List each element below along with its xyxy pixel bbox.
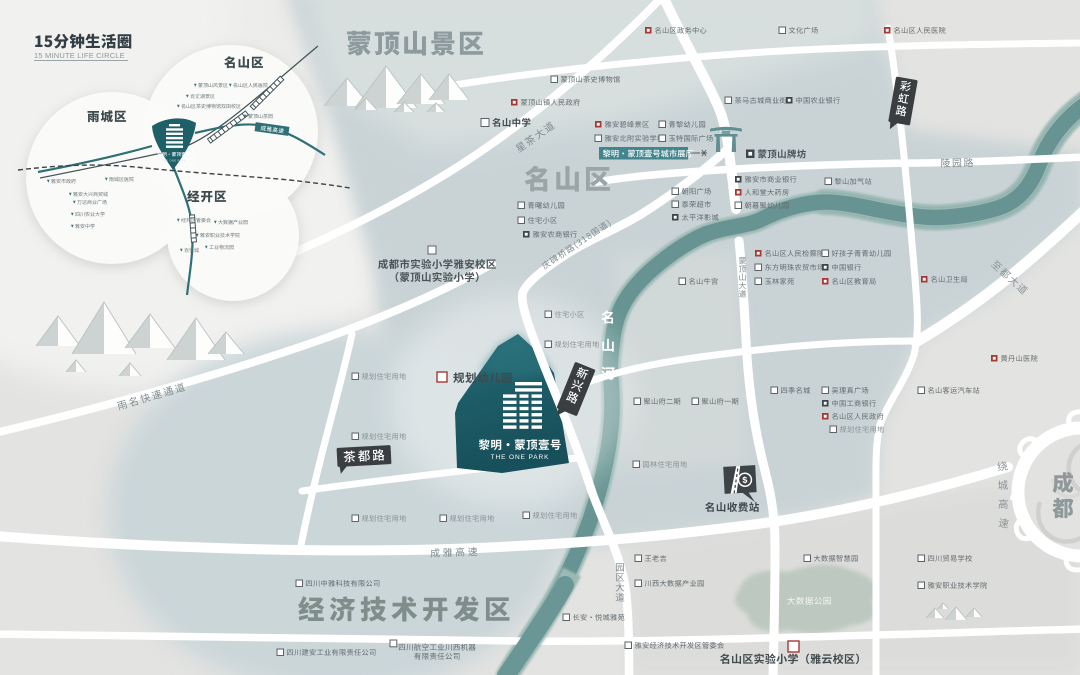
svg-text:THE ONE PARK: THE ONE PARK (162, 159, 186, 163)
svg-text:$: $ (742, 475, 748, 485)
svg-text:15 MINUTE LIFE CIRCLE: 15 MINUTE LIFE CIRCLE (34, 51, 125, 60)
svg-text:THE ONE PARK: THE ONE PARK (491, 454, 550, 461)
